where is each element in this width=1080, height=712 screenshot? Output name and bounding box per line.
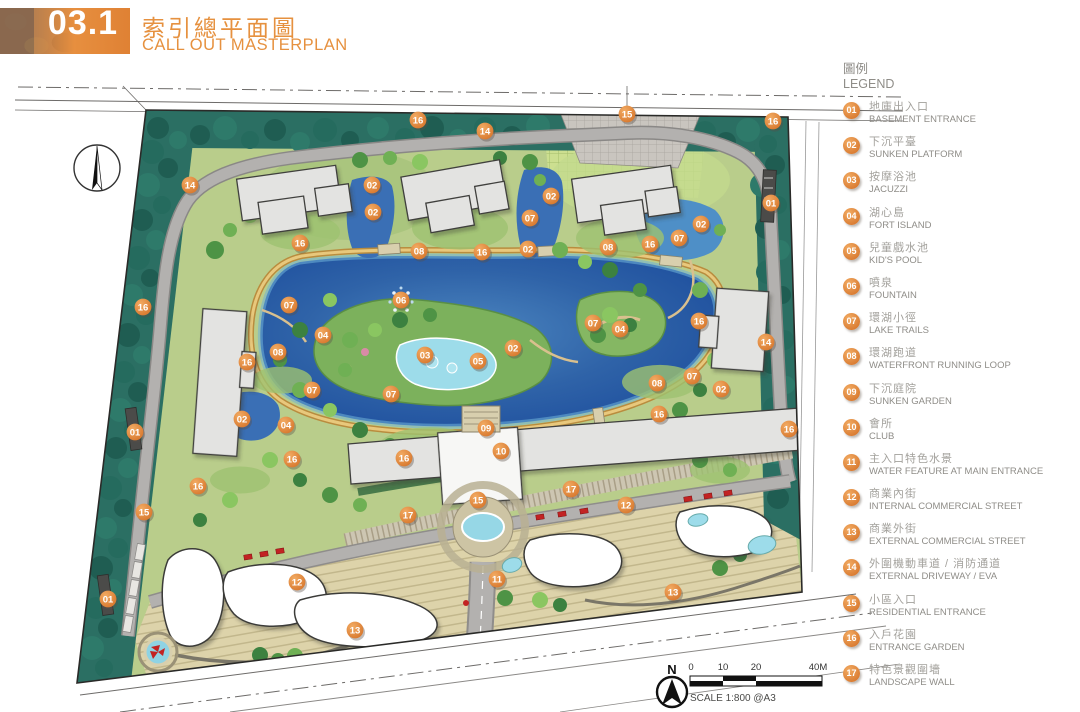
svg-text:04: 04 (318, 330, 329, 341)
tree (367, 117, 389, 139)
legend-item: 08環湖跑道WATERFRONT RUNNING LOOP (843, 347, 1079, 382)
tree (552, 242, 568, 258)
tree (323, 403, 337, 417)
legend-item-number: 05 (843, 243, 860, 260)
tree (633, 283, 647, 297)
legend-item-label-en: SUNKEN GARDEN (869, 396, 952, 408)
parked-car (684, 496, 693, 502)
legend-item: 04湖心島FORT ISLAND (843, 207, 1079, 242)
legend-item-number: 16 (843, 630, 860, 647)
legend-item-label-zh: 特色景觀圍墻 (869, 664, 955, 677)
tree (759, 135, 777, 153)
tree (553, 598, 567, 612)
scale-bar: 0 10 20 40M SCALE 1:800 @A3 (688, 662, 827, 704)
legend-item: 11主入口特色水景WATER FEATURE AT MAIN ENTRANCE (843, 453, 1079, 488)
section-number: 03.1 (36, 0, 130, 46)
tree (140, 140, 164, 164)
svg-text:09: 09 (481, 423, 492, 434)
legend-item-label-zh: 下沉庭院 (869, 383, 952, 396)
svg-text:SCALE 1:800 @A3: SCALE 1:800 @A3 (690, 693, 776, 704)
legend-title-en: LEGEND (843, 77, 1079, 92)
svg-text:02: 02 (237, 414, 248, 425)
svg-text:40M: 40M (809, 662, 828, 673)
tree (128, 382, 148, 402)
tree (736, 118, 760, 142)
legend-item-label-en: EXTERNAL DRIVEWAY / EVA (869, 571, 1001, 583)
svg-text:07: 07 (588, 318, 599, 329)
legend-item-number: 02 (843, 137, 860, 154)
svg-text:08: 08 (652, 378, 663, 389)
tree (80, 636, 104, 660)
legend-item-label-en: FOUNTAIN (869, 290, 917, 302)
svg-text:14: 14 (480, 126, 491, 137)
tree (323, 293, 337, 307)
svg-text:01: 01 (103, 594, 114, 605)
legend-item-number: 01 (843, 102, 860, 119)
legend-item: 07環湖小徑LAKE TRAILS (843, 312, 1079, 347)
parked-car (536, 514, 545, 520)
legend-item-label-en: FORT ISLAND (869, 220, 931, 232)
svg-text:04: 04 (281, 420, 292, 431)
svg-text:16: 16 (295, 238, 306, 249)
parked-car (724, 490, 733, 496)
parked-car (704, 493, 713, 499)
compass-icon (74, 145, 120, 191)
legend-item-label-en: SUNKEN PLATFORM (869, 149, 962, 161)
tree (190, 125, 210, 145)
svg-text:13: 13 (350, 625, 361, 636)
tree (213, 116, 237, 140)
legend-item: 14外圍機動車道 / 消防通道EXTERNAL DRIVEWAY / EVA (843, 558, 1079, 593)
legend-item-label-en: CLUB (869, 431, 894, 443)
tree (534, 174, 546, 186)
tree (692, 282, 708, 298)
svg-text:N: N (667, 662, 676, 677)
legend-item: 13商業外街EXTERNAL COMMERCIAL STREET (843, 523, 1079, 558)
svg-text:16: 16 (477, 247, 488, 258)
legend-item: 06噴泉FOUNTAIN (843, 277, 1079, 312)
tree (108, 538, 128, 558)
svg-text:15: 15 (473, 495, 484, 506)
tree (338, 363, 352, 377)
tree (293, 473, 307, 487)
legend-item-number: 04 (843, 208, 860, 225)
svg-text:02: 02 (546, 191, 557, 202)
parked-car (558, 511, 567, 517)
svg-text:02: 02 (368, 207, 379, 218)
svg-text:02: 02 (367, 180, 378, 191)
svg-text:02: 02 (716, 384, 727, 395)
legend-item: 15小區入口RESIDENTIAL ENTRANCE (843, 594, 1079, 629)
legend-item-label-zh: 下沉平臺 (869, 136, 962, 149)
tree (342, 332, 358, 348)
svg-text:07: 07 (687, 371, 698, 382)
svg-text:02: 02 (508, 343, 519, 354)
tree (169, 131, 187, 149)
masterplan-sheet: N 0 10 20 40M SCALE 1:800 @A3 0101010202… (0, 0, 1080, 712)
tree (712, 560, 728, 576)
svg-text:08: 08 (414, 246, 425, 257)
tree (383, 151, 397, 165)
tree (532, 592, 548, 608)
legend-item-label-en: LANDSCAPE WALL (869, 677, 955, 689)
tree (241, 131, 259, 149)
svg-text:16: 16 (784, 424, 795, 435)
legend-item-label-zh: 會所 (869, 418, 894, 431)
legend-item: 09下沉庭院SUNKEN GARDEN (843, 383, 1079, 418)
roundabout-fountain (139, 633, 177, 671)
tree (113, 361, 135, 383)
svg-text:07: 07 (674, 233, 685, 244)
tree (264, 119, 286, 141)
parked-car (276, 548, 285, 554)
tree (723, 463, 737, 477)
legend-item-number: 03 (843, 172, 860, 189)
svg-text:16: 16 (694, 316, 705, 327)
legend-item-number: 14 (843, 559, 860, 576)
tree (223, 223, 237, 237)
legend-item: 12商業內街INTERNAL COMMERCIAL STREET (843, 488, 1079, 523)
svg-text:14: 14 (761, 337, 772, 348)
legend-item-label-zh: 噴泉 (869, 277, 917, 290)
legend-item-label-zh: 主入口特色水景 (869, 453, 1043, 466)
svg-text:16: 16 (242, 357, 253, 368)
legend-item: 17特色景觀圍墻LANDSCAPE WALL (843, 664, 1079, 699)
tree (193, 513, 207, 527)
tree (443, 648, 457, 662)
svg-text:11: 11 (492, 574, 503, 585)
legend-item-number: 13 (843, 524, 860, 541)
parked-car (580, 508, 589, 514)
legend-item-number: 15 (843, 595, 860, 612)
tree (114, 499, 132, 517)
legend-item: 03按摩浴池JACUZZI (843, 171, 1079, 206)
legend-item-label-en: ENTRANCE GARDEN (869, 642, 965, 654)
svg-text:17: 17 (566, 484, 577, 495)
legend-item-label-zh: 入戶花園 (869, 629, 965, 642)
legend-item-label-zh: 小區入口 (869, 594, 986, 607)
legend-item-number: 12 (843, 489, 860, 506)
north-arrow-icon: N (657, 662, 687, 707)
tree (714, 224, 726, 236)
shrub-mass (210, 467, 270, 494)
svg-text:16: 16 (413, 115, 424, 126)
tree (672, 402, 688, 418)
legend-item-label-en: WATER FEATURE AT MAIN ENTRANCE (869, 466, 1043, 478)
legend-item-label-zh: 地庫出入口 (869, 101, 976, 114)
page-title-en: CALL OUT MASTERPLAN (142, 36, 348, 55)
svg-text:01: 01 (130, 427, 141, 438)
legend-item-label-en: RESIDENTIAL ENTRANCE (869, 607, 986, 619)
svg-text:20: 20 (751, 662, 762, 673)
legend-item: 16入戶花園ENTRANCE GARDEN (843, 629, 1079, 664)
svg-text:06: 06 (396, 295, 407, 306)
svg-text:02: 02 (696, 219, 707, 230)
tree (368, 323, 382, 337)
tree (422, 652, 438, 668)
svg-text:08: 08 (603, 242, 614, 253)
tree (578, 255, 592, 269)
legend-item-label-zh: 商業內街 (869, 488, 1022, 501)
legend-item: 02下沉平臺SUNKEN PLATFORM (843, 136, 1079, 171)
legend-item-label-en: JACUZZI (869, 184, 917, 196)
parked-car (244, 554, 253, 560)
legend-panel: 圖例 LEGEND 01地庫出入口BASEMENT ENTRANCE02下沉平臺… (843, 62, 1079, 699)
svg-text:16: 16 (399, 453, 410, 464)
tree (95, 659, 113, 677)
legend-item-label-zh: 商業外街 (869, 523, 1026, 536)
legend-item-label-en: BASEMENT ENTRANCE (869, 114, 976, 126)
tree (141, 269, 159, 287)
legend-item-label-en: EXTERNAL COMMERCIAL STREET (869, 536, 1026, 548)
svg-text:15: 15 (622, 109, 633, 120)
tree (522, 154, 538, 170)
svg-text:02: 02 (523, 244, 534, 255)
svg-text:04: 04 (615, 324, 626, 335)
tree (412, 154, 428, 170)
tree (262, 452, 278, 468)
legend-item-number: 10 (843, 419, 860, 436)
svg-text:10: 10 (718, 662, 729, 673)
tree (98, 618, 118, 638)
tree (158, 158, 178, 178)
tree (423, 308, 437, 322)
legend-item-label-zh: 環湖跑道 (869, 347, 1011, 360)
svg-text:12: 12 (621, 500, 632, 511)
svg-text:07: 07 (386, 389, 397, 400)
legend-item-label-en: INTERNAL COMMERCIAL STREET (869, 501, 1022, 513)
legend-title-zh: 圖例 (843, 62, 1079, 77)
legend-items: 01地庫出入口BASEMENT ENTRANCE02下沉平臺SUNKEN PLA… (843, 101, 1079, 699)
tree (147, 117, 169, 139)
svg-text:07: 07 (284, 300, 295, 311)
tree (352, 152, 368, 168)
legend-item: 10會所CLUB (843, 418, 1079, 453)
tree (153, 196, 171, 214)
tree (222, 492, 238, 508)
svg-text:03: 03 (420, 350, 431, 361)
svg-text:12: 12 (292, 577, 303, 588)
tree (602, 307, 618, 323)
svg-text:07: 07 (525, 213, 536, 224)
svg-text:10: 10 (496, 446, 507, 457)
tree (353, 498, 367, 512)
svg-text:08: 08 (273, 347, 284, 358)
tree (322, 487, 338, 503)
svg-text:01: 01 (766, 198, 777, 209)
legend-item-label-zh: 外圍機動車道 / 消防通道 (869, 558, 1001, 571)
svg-text:17: 17 (403, 510, 414, 521)
svg-text:16: 16 (138, 302, 149, 313)
legend-item-number: 09 (843, 384, 860, 401)
legend-item-number: 06 (843, 278, 860, 295)
svg-text:16: 16 (768, 116, 779, 127)
tree (206, 241, 224, 259)
svg-text:16: 16 (193, 481, 204, 492)
tree (292, 322, 308, 338)
legend-item-number: 08 (843, 348, 860, 365)
tree (313, 118, 337, 142)
svg-text:0: 0 (688, 662, 693, 673)
tree (118, 458, 138, 478)
legend-item-number: 11 (843, 454, 860, 471)
svg-text:07: 07 (307, 385, 318, 396)
legend-item: 01地庫出入口BASEMENT ENTRANCE (843, 101, 1079, 136)
tree (105, 437, 127, 459)
tree (133, 346, 151, 364)
svg-text:16: 16 (645, 239, 656, 250)
tree (95, 517, 117, 539)
legend-item: 05兒童戲水池KID'S POOL (843, 242, 1079, 277)
legend-item-label-zh: 兒童戲水池 (869, 242, 929, 255)
svg-text:13: 13 (668, 587, 679, 598)
legend-item-label-zh: 湖心島 (869, 207, 931, 220)
svg-text:05: 05 (473, 356, 484, 367)
legend-item-number: 07 (843, 313, 860, 330)
tree (602, 262, 618, 278)
tree (352, 422, 368, 438)
legend-item-label-zh: 按摩浴池 (869, 171, 917, 184)
legend-item-label-en: LAKE TRAILS (869, 325, 929, 337)
parked-car (260, 551, 269, 557)
svg-text:14: 14 (185, 180, 196, 191)
tree (271, 653, 285, 667)
tree (136, 173, 160, 197)
svg-text:15: 15 (139, 507, 150, 518)
legend-item-label-en: WATERFRONT RUNNING LOOP (869, 360, 1011, 372)
legend-item-number: 17 (843, 665, 860, 682)
tree (392, 312, 408, 328)
svg-text:16: 16 (654, 409, 665, 420)
svg-text:16: 16 (287, 454, 298, 465)
legend-item-label-en: KID'S POOL (869, 255, 929, 267)
tree (497, 590, 513, 606)
legend-item-label-zh: 環湖小徑 (869, 312, 929, 325)
